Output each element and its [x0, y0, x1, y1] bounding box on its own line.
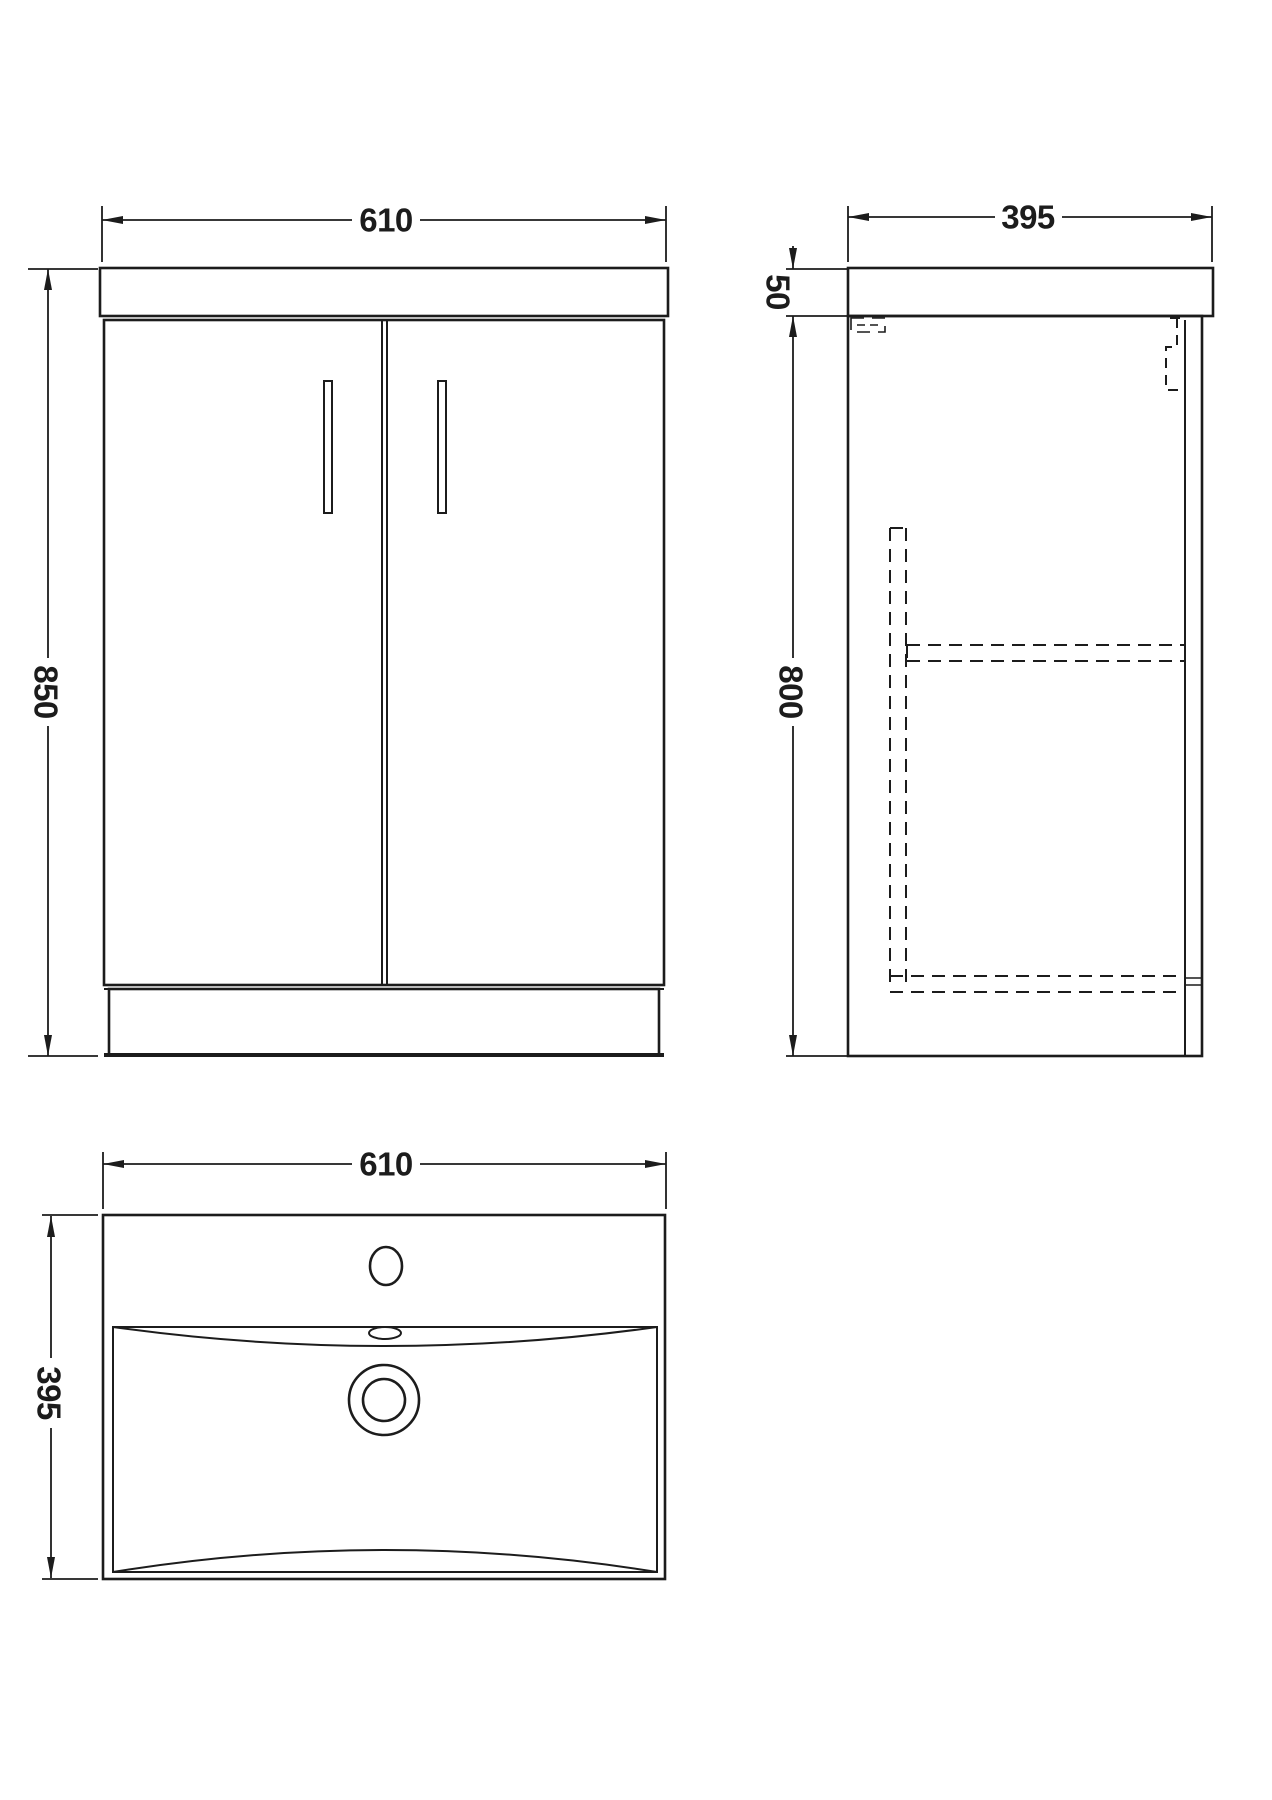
side-countertop [848, 268, 1213, 316]
front-view: 610 850 [28, 202, 669, 1057]
dim-side-counter-height: 50 [760, 246, 849, 316]
left-door-handle [324, 381, 332, 513]
arrowhead-down [44, 1035, 52, 1056]
front-doors [104, 320, 664, 985]
dim-plan-width: 610 [103, 1146, 666, 1210]
waste-outer [349, 1365, 419, 1435]
arrowhead-up [789, 316, 797, 337]
arrowhead-left [103, 1160, 124, 1168]
basin-front-curve [113, 1550, 657, 1572]
dim-front-height: 850 [28, 269, 99, 1056]
front-countertop [100, 268, 668, 316]
waste-inner [363, 1379, 405, 1421]
arrowhead-down [47, 1557, 55, 1578]
side-cabinet-height-label: 800 [773, 665, 810, 719]
plan-width-label: 610 [359, 1146, 413, 1183]
hidden-bottom-panel [890, 976, 1185, 992]
hidden-panel-edge [890, 528, 906, 990]
arrowhead-down [789, 248, 797, 269]
vanity-drawing: 610 850 395 [0, 0, 1272, 1800]
dim-side-depth: 395 [848, 199, 1212, 263]
side-counter-label: 50 [760, 274, 797, 310]
plan-depth-label: 395 [31, 1366, 68, 1420]
side-depth-label: 395 [1001, 199, 1055, 236]
technical-drawing-page: 610 850 395 [0, 0, 1272, 1800]
arrowhead-right [1191, 213, 1212, 221]
overflow-slot [369, 1327, 401, 1339]
fixing-clip-detail [851, 318, 885, 332]
arrowhead-down [789, 1035, 797, 1056]
arrowhead-up [47, 1216, 55, 1237]
hinge-bracket-detail [1166, 318, 1187, 390]
front-width-label: 610 [359, 202, 413, 239]
arrowhead-up [44, 269, 52, 290]
plan-view: 610 395 [31, 1146, 667, 1580]
basin-back-curve [113, 1327, 657, 1346]
front-height-label: 850 [28, 665, 65, 719]
dim-front-width: 610 [102, 202, 666, 263]
arrowhead-right [645, 1160, 666, 1168]
arrowhead-left [848, 213, 869, 221]
side-cabinet [848, 316, 1202, 1056]
dim-side-cabinet-height: 800 [773, 316, 849, 1056]
arrowhead-right [645, 216, 666, 224]
plan-countertop [103, 1215, 665, 1579]
hidden-shelf [907, 645, 1185, 661]
tap-hole [370, 1247, 402, 1285]
arrowhead-left [102, 216, 123, 224]
side-view: 395 50 800 [760, 199, 1214, 1057]
dim-plan-depth: 395 [31, 1215, 99, 1579]
front-plinth [109, 989, 659, 1055]
right-door-handle [438, 381, 446, 513]
